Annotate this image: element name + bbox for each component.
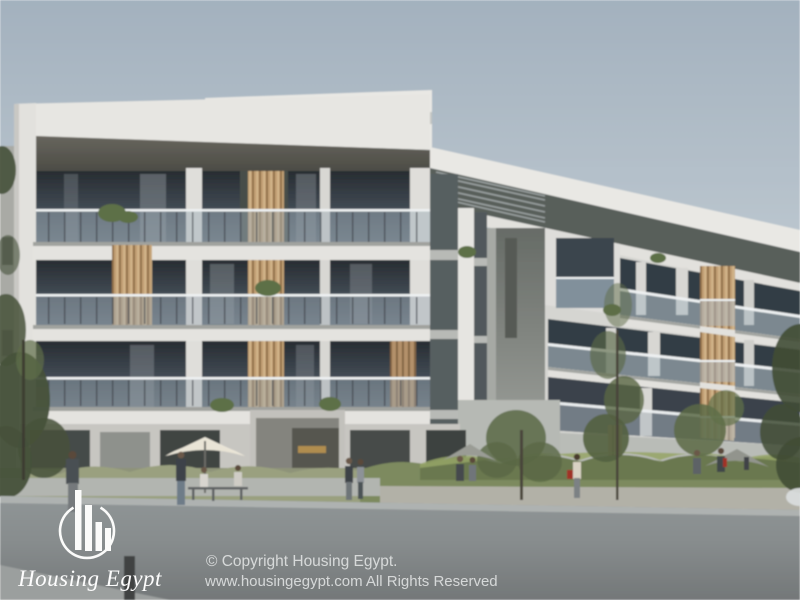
svg-text:© Copyright Housing Egypt.: © Copyright Housing Egypt.	[206, 553, 398, 570]
svg-text:Housing Egypt: Housing Egypt	[17, 566, 162, 591]
svg-text:www.housingegypt.com All Right: www.housingegypt.com All Rights Reserved	[204, 573, 498, 590]
